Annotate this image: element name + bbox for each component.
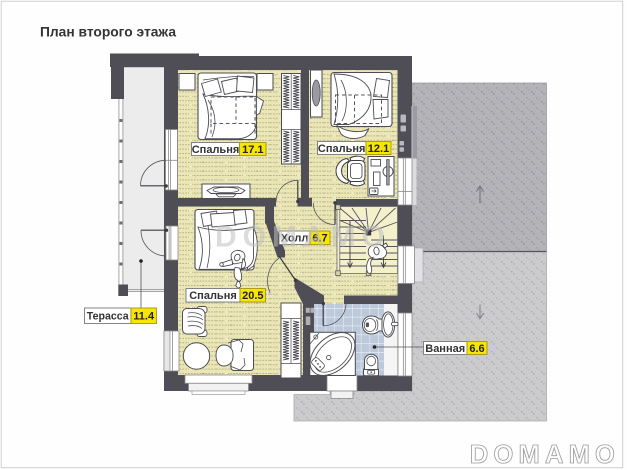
svg-text:Спальня: Спальня: [318, 143, 366, 155]
svg-text:6.6: 6.6: [469, 343, 484, 355]
svg-text:Спальня: Спальня: [192, 144, 240, 156]
svg-text:20.5: 20.5: [242, 290, 263, 302]
svg-text:Терасса: Терасса: [87, 311, 129, 323]
svg-text:DOMAMO: DOMAMO: [470, 441, 620, 469]
svg-text:12.1: 12.1: [368, 143, 389, 155]
svg-text:DOMAMO: DOMAMO: [215, 221, 391, 254]
svg-text:17.1: 17.1: [242, 144, 263, 156]
svg-text:Ванная: Ванная: [425, 343, 465, 355]
svg-text:Спальня: Спальня: [189, 290, 237, 302]
svg-text:11.4: 11.4: [133, 311, 155, 323]
svg-text:План второго этажа: План второго этажа: [40, 25, 176, 40]
